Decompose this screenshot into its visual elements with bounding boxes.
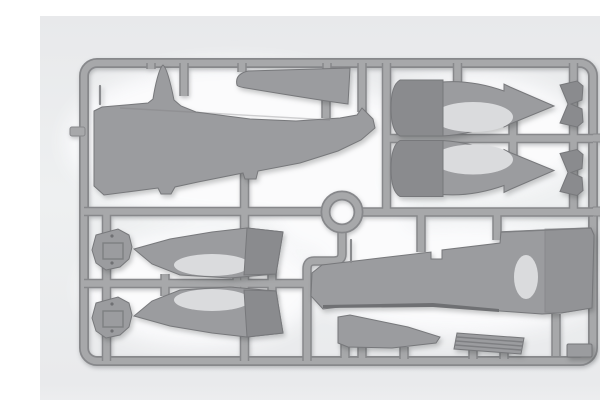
part-small-rect <box>567 344 592 357</box>
sprue-tab-right <box>592 207 600 216</box>
sprue-tab-left <box>70 127 85 136</box>
sprue-scene <box>40 16 600 400</box>
nacelle-rear-ring <box>244 228 283 275</box>
wheel-well-opening <box>514 255 538 299</box>
part-radiator-ribbed-plate <box>454 333 524 354</box>
part-cowl-flap-segment-2 <box>560 150 583 196</box>
sprue-photo: injection-molded sprue with aircraft par… <box>40 16 600 400</box>
sprue-tab-right-upper <box>592 134 600 142</box>
cowl-ring <box>391 80 443 136</box>
